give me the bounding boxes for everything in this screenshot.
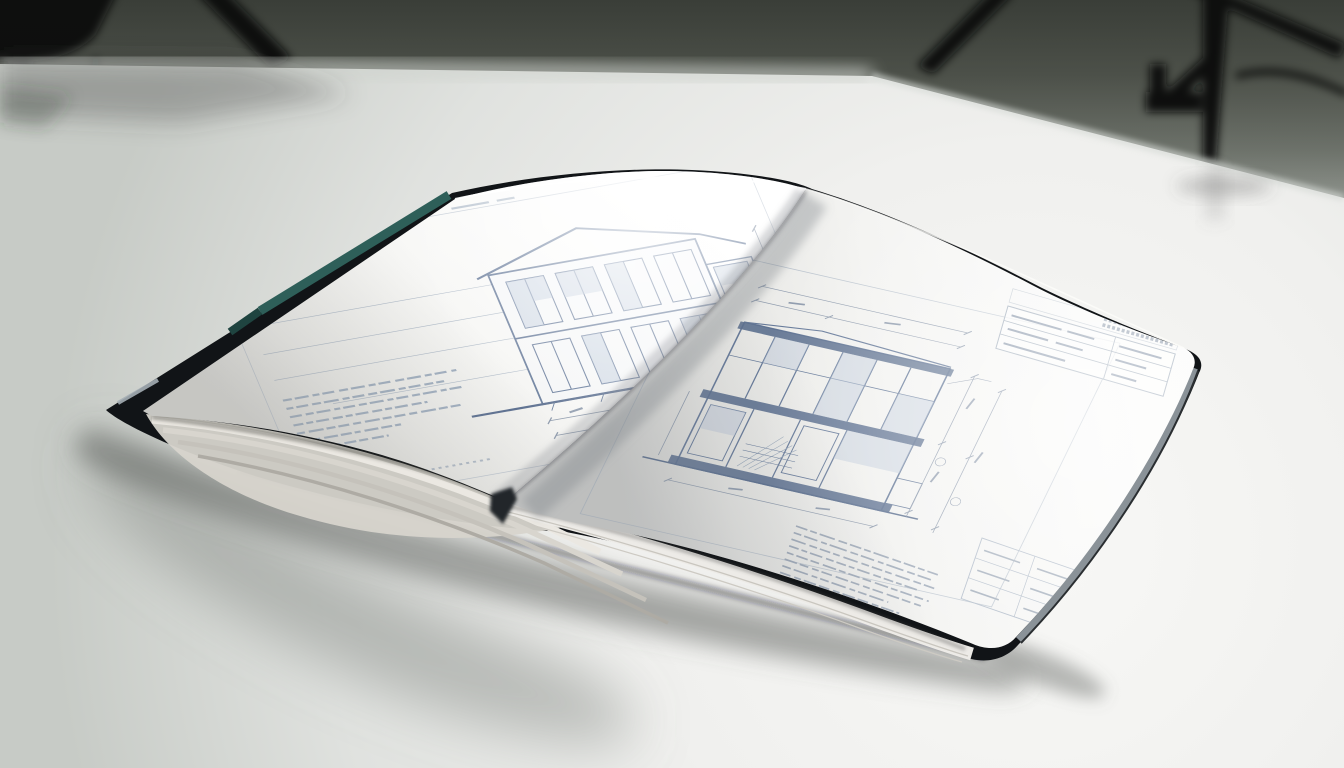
photo-canvas [0,0,1344,768]
tripod-right-reflection [1206,166,1224,220]
photo-scene [0,0,1344,768]
